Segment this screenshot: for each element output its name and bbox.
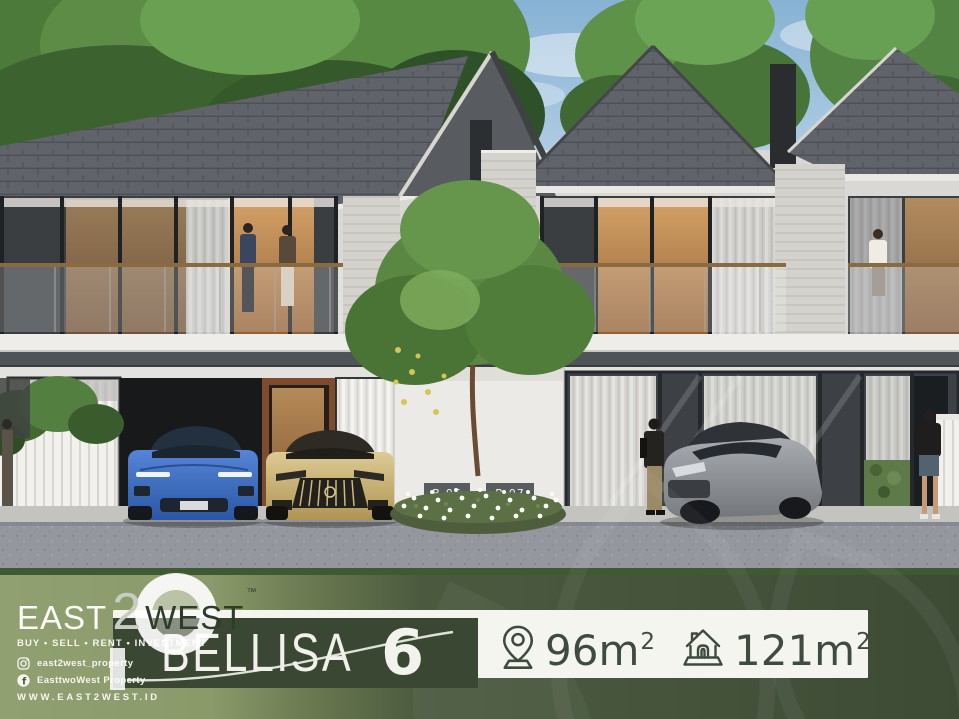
brand-logo-two: 2 <box>112 586 141 638</box>
brand-logo: EAST2WEST™ <box>17 586 256 638</box>
bottom-banner: BELLISA 6 96m2 <box>0 575 959 719</box>
brand-logo-west: WEST <box>145 601 244 634</box>
building-area-spec: 121m2 <box>681 621 871 672</box>
person-far-left <box>2 419 13 516</box>
townhouse-photo: B-06 B-07 <box>0 0 959 575</box>
facebook-row: f EasttwoWest Property <box>17 673 146 688</box>
land-area-spec: 96m2 <box>500 621 655 672</box>
property-number: 6 <box>381 618 424 688</box>
land-area-value: 96m2 <box>545 621 655 672</box>
facebook-handle: EasttwoWest Property <box>37 675 146 686</box>
website-url: WWW.EAST2WEST.ID <box>17 692 160 703</box>
social-links: east2west_property f EasttwoWest Propert… <box>17 656 146 690</box>
instagram-icon <box>17 657 30 670</box>
flyer: B-06 B-07 <box>0 0 959 719</box>
building-area-value: 121m2 <box>734 621 871 672</box>
location-pin-icon <box>500 623 536 670</box>
instagram-row: east2west_property <box>17 656 146 671</box>
spec-list: 96m2 121m2 <box>500 615 871 677</box>
facebook-icon: f <box>17 674 30 687</box>
brand-logo-east: EAST <box>17 601 107 634</box>
trademark-symbol: ™ <box>246 588 256 598</box>
watermark-bar <box>110 648 125 690</box>
house-icon <box>681 625 725 667</box>
